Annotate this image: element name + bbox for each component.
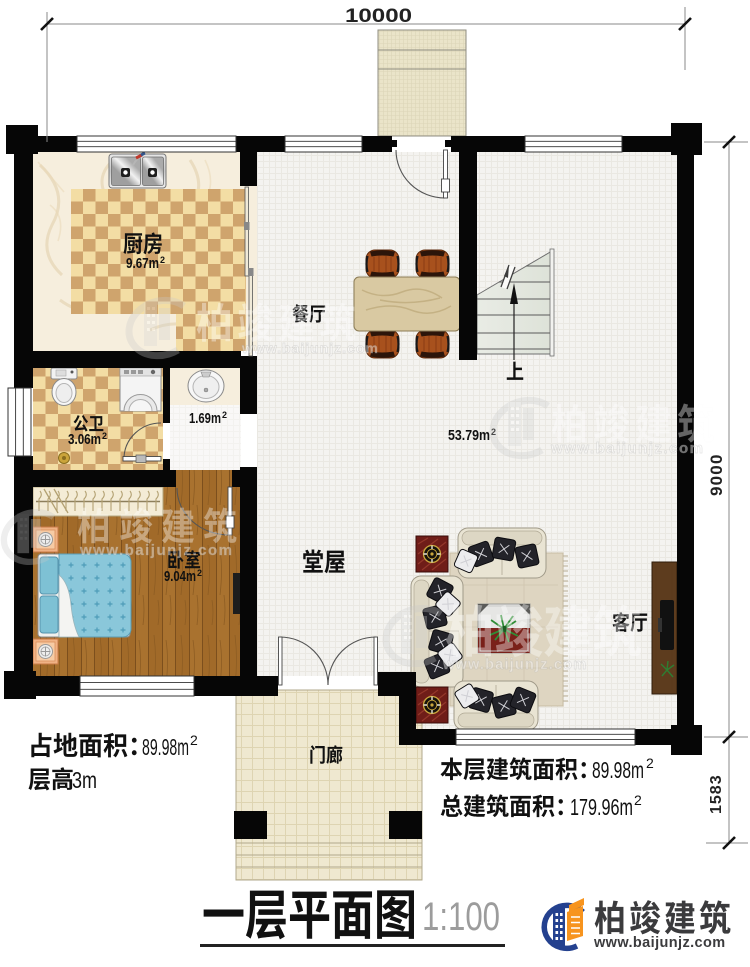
svg-text:www.baijunjz.com: www.baijunjz.com [593,935,726,951]
svg-text:1.69m: 1.69m [189,410,221,427]
svg-text:2: 2 [102,431,107,441]
svg-text:9.04m: 9.04m [164,568,196,585]
svg-text:www.baijunjz.com: www.baijunjz.com [550,440,704,457]
svg-text:179.96m: 179.96m [570,794,633,820]
svg-text:www.baijunjz.com: www.baijunjz.com [241,340,379,356]
svg-text:2: 2 [190,732,198,748]
svg-text:3.06m: 3.06m [68,431,101,448]
svg-text:www.baijunjz.com: www.baijunjz.com [79,542,233,559]
svg-text:89.98m: 89.98m [592,757,644,783]
svg-text:9000: 9000 [707,453,726,496]
svg-text:53.79m: 53.79m [448,427,490,444]
svg-text:1:100: 1:100 [422,895,500,939]
svg-text:2: 2 [197,568,202,578]
svg-text:2: 2 [646,755,654,771]
svg-text:9.67m: 9.67m [126,255,159,272]
svg-text:www.baijunjz.com: www.baijunjz.com [442,657,587,673]
svg-text:2: 2 [634,792,642,808]
svg-text:3m: 3m [72,767,97,793]
svg-text:1583: 1583 [708,774,725,814]
svg-text:2: 2 [222,410,227,420]
svg-text:2: 2 [160,255,165,265]
svg-text:89.98m: 89.98m [142,734,189,760]
svg-text:10000: 10000 [345,6,412,27]
